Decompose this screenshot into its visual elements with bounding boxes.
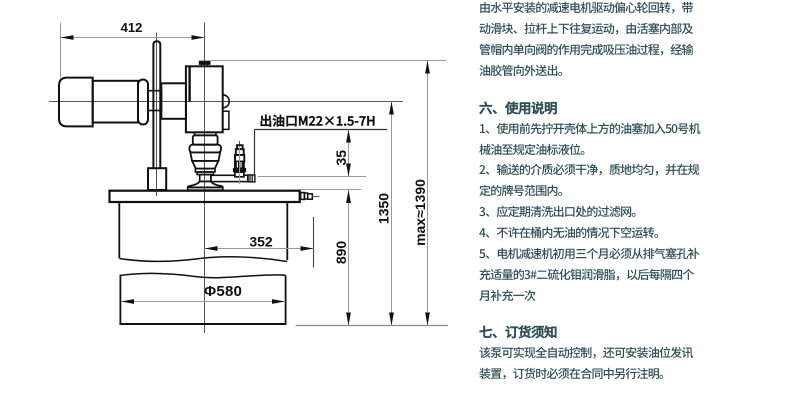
svg-text:max≈1390: max≈1390 [412, 179, 428, 246]
svg-text:890: 890 [333, 241, 349, 265]
svg-text:1350: 1350 [376, 193, 392, 224]
svg-text:出油口M22×1.5-7H: 出油口M22×1.5-7H [260, 110, 376, 129]
svg-text:352: 352 [249, 233, 273, 249]
svg-text:35: 35 [333, 150, 349, 166]
svg-text:Φ580: Φ580 [204, 283, 242, 300]
svg-text:412: 412 [121, 20, 143, 35]
